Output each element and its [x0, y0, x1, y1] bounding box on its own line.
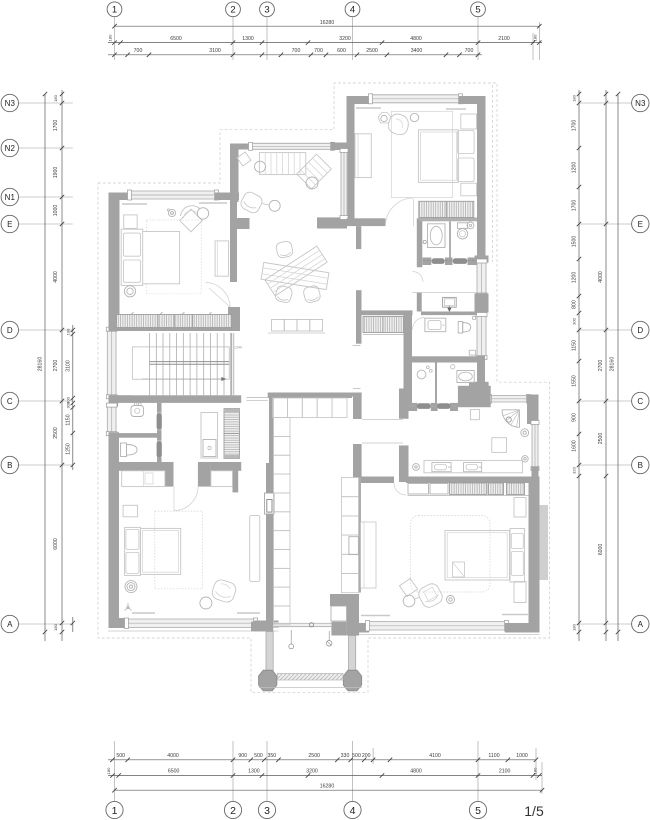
svg-text:6500: 6500 — [168, 769, 180, 775]
svg-text:2100: 2100 — [498, 36, 510, 42]
svg-text:3400: 3400 — [411, 48, 423, 54]
svg-text:1/5: 1/5 — [524, 803, 544, 819]
svg-text:2: 2 — [230, 805, 236, 817]
svg-text:N3: N3 — [635, 99, 646, 108]
svg-text:2500: 2500 — [308, 753, 320, 759]
svg-text:1200: 1200 — [572, 162, 578, 174]
svg-text:E: E — [638, 220, 643, 229]
svg-text:2500: 2500 — [366, 48, 378, 54]
svg-text:1300: 1300 — [242, 36, 254, 42]
svg-text:700: 700 — [314, 48, 323, 54]
svg-text:900: 900 — [572, 413, 578, 422]
svg-text:1700: 1700 — [53, 120, 59, 132]
svg-text:2700: 2700 — [53, 360, 59, 372]
svg-text:180: 180 — [532, 767, 537, 774]
svg-text:1100: 1100 — [488, 753, 499, 759]
svg-text:800: 800 — [572, 300, 578, 309]
svg-text:2100: 2100 — [499, 769, 511, 775]
svg-text:16280: 16280 — [320, 784, 335, 790]
svg-text:180: 180 — [572, 94, 577, 101]
svg-text:180: 180 — [53, 623, 58, 630]
svg-text:1900: 1900 — [53, 167, 59, 179]
svg-text:1: 1 — [112, 5, 117, 16]
svg-text:180: 180 — [572, 623, 577, 630]
svg-text:5: 5 — [475, 805, 481, 817]
svg-text:500: 500 — [254, 753, 263, 759]
svg-text:200: 200 — [362, 753, 371, 759]
svg-text:600: 600 — [337, 48, 346, 54]
svg-text:3200: 3200 — [306, 769, 318, 775]
svg-text:700: 700 — [292, 48, 301, 54]
svg-text:900: 900 — [238, 753, 247, 759]
svg-text:N1: N1 — [5, 193, 16, 202]
svg-text:3: 3 — [264, 5, 269, 16]
svg-text:16280: 16280 — [320, 20, 335, 26]
svg-text:1340: 1340 — [234, 346, 242, 350]
svg-text:1500: 1500 — [572, 236, 578, 248]
svg-text:C: C — [7, 397, 13, 406]
svg-text:1150: 1150 — [572, 340, 578, 351]
svg-text:N3: N3 — [5, 99, 16, 108]
svg-text:5: 5 — [475, 5, 480, 16]
svg-text:6000: 6000 — [598, 544, 604, 556]
svg-text:1250: 1250 — [65, 443, 71, 455]
svg-text:3100: 3100 — [209, 48, 221, 54]
svg-text:1700: 1700 — [572, 120, 578, 132]
svg-text:4000: 4000 — [167, 753, 179, 759]
svg-text:4: 4 — [350, 805, 356, 817]
svg-text:D: D — [7, 326, 13, 335]
svg-text:3200: 3200 — [339, 36, 351, 42]
svg-text:B: B — [638, 461, 643, 470]
svg-text:500: 500 — [116, 753, 125, 759]
svg-text:1300: 1300 — [248, 769, 260, 775]
svg-text:4000: 4000 — [53, 271, 59, 283]
svg-text:1200: 1200 — [572, 272, 578, 284]
svg-text:350: 350 — [267, 753, 276, 759]
svg-text:28160: 28160 — [38, 357, 44, 372]
svg-text:B: B — [7, 461, 12, 470]
svg-text:3100: 3100 — [65, 360, 71, 372]
svg-text:2500: 2500 — [598, 433, 604, 445]
svg-text:300: 300 — [572, 317, 577, 324]
svg-text:500: 500 — [352, 753, 361, 759]
svg-text:700: 700 — [465, 48, 474, 54]
svg-text:2: 2 — [230, 5, 235, 16]
svg-text:1000: 1000 — [516, 753, 528, 759]
svg-text:2500: 2500 — [53, 427, 59, 439]
svg-text:1: 1 — [112, 805, 118, 817]
svg-text:100: 100 — [65, 328, 70, 335]
svg-text:28160: 28160 — [610, 357, 616, 372]
svg-text:4800: 4800 — [410, 769, 422, 775]
svg-text:330: 330 — [341, 753, 350, 759]
svg-text:4800: 4800 — [410, 36, 422, 42]
svg-text:1700: 1700 — [572, 200, 578, 212]
svg-text:180: 180 — [532, 34, 537, 41]
svg-text:E: E — [7, 220, 12, 229]
svg-text:4: 4 — [350, 5, 355, 16]
svg-text:A: A — [7, 620, 13, 629]
svg-text:4100: 4100 — [429, 753, 441, 759]
svg-text:2700: 2700 — [598, 360, 604, 372]
svg-text:N2: N2 — [5, 144, 16, 153]
svg-text:A: A — [638, 620, 644, 629]
svg-text:180: 180 — [108, 34, 113, 41]
svg-text:300: 300 — [65, 401, 70, 408]
svg-text:180: 180 — [106, 767, 111, 774]
svg-text:320: 320 — [572, 466, 577, 473]
svg-text:D: D — [637, 326, 643, 335]
svg-text:6000: 6000 — [53, 538, 59, 550]
svg-text:3: 3 — [264, 805, 270, 817]
svg-text:6500: 6500 — [170, 36, 182, 42]
svg-text:1600: 1600 — [572, 440, 578, 452]
svg-text:C: C — [637, 397, 643, 406]
svg-text:4000: 4000 — [598, 271, 604, 283]
svg-text:1000: 1000 — [53, 205, 59, 217]
svg-text:180: 180 — [53, 94, 58, 101]
svg-text:1150: 1150 — [65, 414, 71, 425]
svg-text:700: 700 — [134, 48, 143, 54]
svg-text:1550: 1550 — [572, 375, 578, 387]
